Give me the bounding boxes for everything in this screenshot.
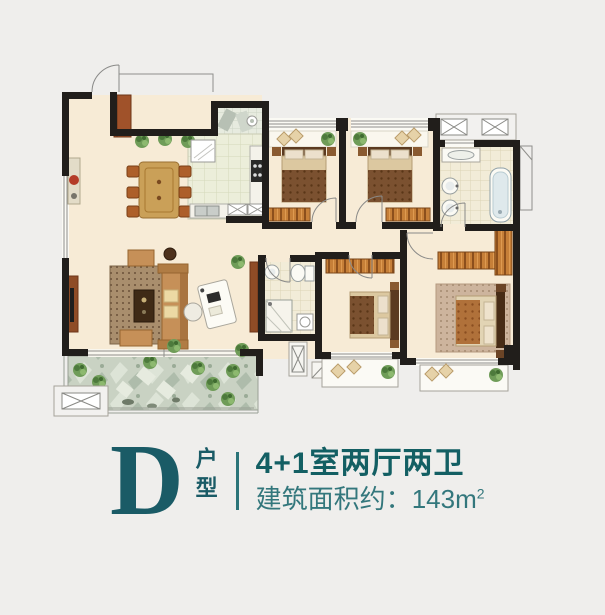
caption-divider xyxy=(236,452,239,510)
floor-plan-page: D 户型 4+1室两厅两卫 建筑面积约：143m2 xyxy=(0,0,605,615)
ac-platform-bottom-left xyxy=(54,386,108,416)
area-exponent: 2 xyxy=(477,485,485,501)
caption-text-block: 4+1室两厅两卫 建筑面积约：143m2 xyxy=(256,448,485,513)
unit-type-label: 户型 xyxy=(189,447,221,515)
area-text: 建筑面积约：143m2 xyxy=(256,486,485,513)
area-value: 143m xyxy=(412,484,477,514)
caption: D 户型 4+1室两厅两卫 建筑面积约：143m2 xyxy=(110,440,485,522)
layout-title: 4+1室两厅两卫 xyxy=(256,448,485,480)
bay-window-bottom-center xyxy=(322,359,398,387)
ac-platform-top-right xyxy=(436,114,516,140)
bay-window-master xyxy=(420,364,508,391)
unit-type-letter: D xyxy=(110,440,184,522)
floor-plan-drawing xyxy=(0,0,605,435)
area-label: 建筑面积约： xyxy=(256,484,412,514)
